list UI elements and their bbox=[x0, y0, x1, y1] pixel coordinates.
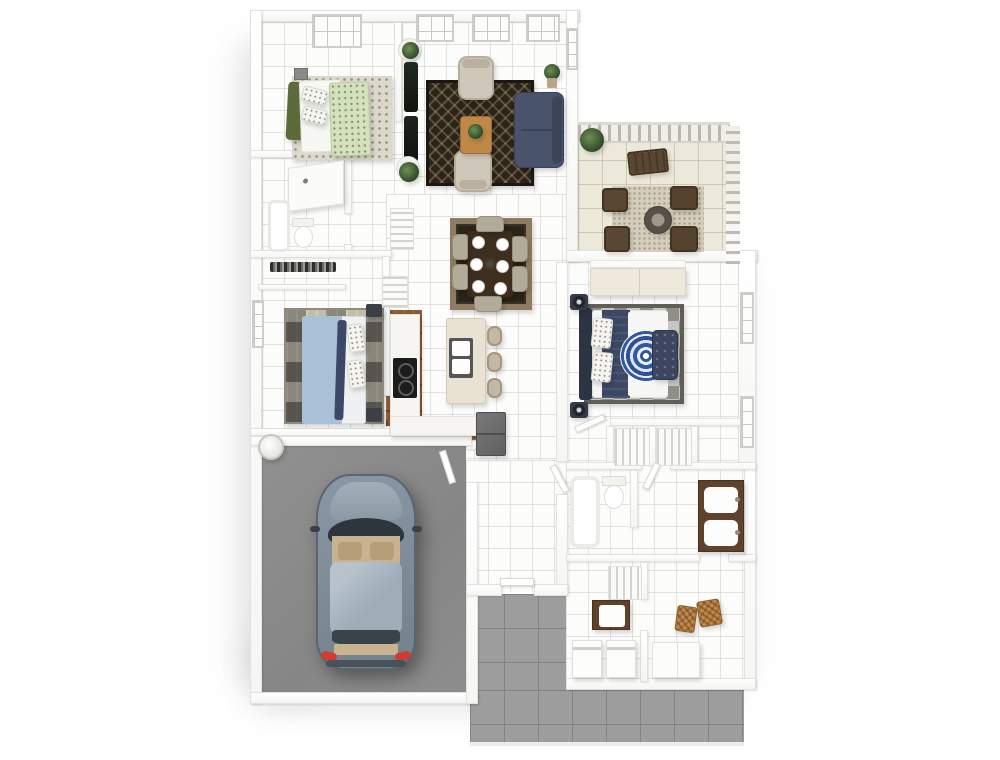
patio-plant-icon bbox=[580, 128, 604, 152]
vanity-faucet-1 bbox=[735, 497, 740, 502]
master-window-2 bbox=[740, 396, 754, 448]
sink-basin-2 bbox=[452, 359, 470, 374]
cooktop bbox=[393, 358, 417, 398]
car-hood bbox=[330, 482, 402, 520]
dining-chair-top bbox=[476, 216, 504, 232]
armchair-bottom-back bbox=[459, 180, 487, 189]
bedroom-1-wall-right bbox=[394, 22, 402, 122]
vanity-sink-1 bbox=[704, 487, 738, 513]
master-wardrobe-ledge bbox=[590, 260, 686, 268]
driveway-floor bbox=[470, 690, 744, 746]
front-wall-left-of-door bbox=[466, 584, 502, 596]
patio-bench bbox=[627, 148, 669, 176]
car-seat-right bbox=[370, 542, 394, 560]
wicker-basket-right bbox=[696, 598, 723, 628]
linen-shelves-lower bbox=[382, 276, 408, 308]
laundry-sink-basin bbox=[599, 605, 625, 627]
living-corner-plant-pot bbox=[547, 78, 557, 88]
mudroom-cabinet bbox=[652, 642, 700, 678]
living-plant-bottom-icon bbox=[399, 162, 419, 182]
dryer-control-strip bbox=[607, 647, 635, 650]
suite-wall-right-lower bbox=[744, 465, 756, 687]
master-window-1 bbox=[740, 292, 754, 344]
armchair-top bbox=[458, 56, 494, 100]
dryer bbox=[606, 640, 636, 678]
foyer-floor bbox=[466, 460, 566, 592]
navy-sofa bbox=[514, 92, 564, 168]
living-right-wall-window bbox=[566, 28, 578, 70]
burner-2 bbox=[398, 380, 414, 396]
living-plant-top-icon bbox=[402, 42, 419, 59]
master-closet-shelf-right bbox=[656, 428, 692, 466]
bath1-faucet-icon bbox=[303, 178, 308, 184]
car bbox=[316, 474, 416, 670]
exterior-wall-left bbox=[250, 10, 262, 704]
patio-chair-2 bbox=[604, 226, 630, 252]
linen-shelves-upper bbox=[390, 208, 414, 250]
front-wall-right-of-door bbox=[534, 584, 568, 596]
vanity-faucet-2 bbox=[735, 530, 740, 535]
chandelier-icon bbox=[486, 260, 494, 268]
island-sink bbox=[449, 338, 473, 378]
master-suite-wall-left-upper bbox=[556, 262, 568, 462]
washer-control-strip bbox=[573, 647, 601, 650]
place-setting-1 bbox=[472, 236, 485, 249]
sink-basin-1 bbox=[452, 341, 470, 356]
master-toilet-bowl bbox=[604, 485, 624, 509]
car-mirror-right bbox=[412, 526, 422, 532]
bedroom-2-nightstand-top bbox=[366, 304, 382, 317]
dining-chair-left-1 bbox=[452, 234, 468, 260]
front-door-leaf bbox=[500, 578, 534, 586]
wicker-basket-left bbox=[674, 605, 697, 634]
master-pillow-2 bbox=[590, 351, 613, 383]
master-bench bbox=[652, 330, 678, 380]
place-setting-6 bbox=[494, 282, 507, 295]
bedroom-2-closet-wall bbox=[258, 284, 346, 290]
refrigerator bbox=[476, 412, 506, 456]
armchair-bottom bbox=[454, 150, 492, 192]
master-pillow-1 bbox=[590, 317, 613, 349]
patio-chair-3 bbox=[670, 186, 698, 210]
dining-chair-right-1 bbox=[512, 236, 528, 262]
bedroom-2-nightstand-bottom bbox=[366, 408, 382, 421]
dining-chair-right-2 bbox=[512, 266, 528, 292]
wardrobe-door-line bbox=[639, 269, 640, 295]
bedroom-1-headboard-cabinet bbox=[294, 68, 308, 80]
master-bath-wall-bottom-left bbox=[566, 554, 700, 562]
master-tub bbox=[570, 476, 600, 548]
living-window-3 bbox=[526, 14, 560, 42]
toilet-nook-wall bbox=[630, 470, 638, 528]
place-setting-2 bbox=[496, 238, 509, 251]
front-porch-floor bbox=[470, 594, 566, 698]
laundry-sink-cabinet bbox=[592, 600, 630, 630]
bar-stool-1 bbox=[487, 326, 502, 346]
place-setting-4 bbox=[496, 260, 509, 273]
place-setting-5 bbox=[472, 280, 485, 293]
laundry-wall-right-lower bbox=[640, 630, 648, 682]
master-wardrobe bbox=[590, 268, 686, 296]
double-vanity bbox=[698, 480, 744, 552]
bath1-vanity bbox=[288, 160, 344, 212]
garage-wall-bottom bbox=[250, 692, 478, 704]
master-bath-wall-bottom-right bbox=[728, 554, 756, 562]
sofa-cushion-line bbox=[521, 129, 557, 131]
lower-closet-shelf bbox=[608, 566, 642, 600]
coffee-table-plant-icon bbox=[468, 124, 483, 139]
master-closet-divider-1 bbox=[606, 426, 614, 466]
dining-chair-bottom bbox=[474, 296, 502, 312]
bath1-toilet-bowl bbox=[294, 226, 313, 248]
kitchen-bottom-counter bbox=[390, 416, 480, 436]
master-headboard bbox=[579, 308, 592, 400]
floorplan-canvas bbox=[0, 0, 1000, 760]
washer bbox=[572, 640, 602, 678]
car-mirror-left bbox=[310, 526, 320, 532]
patio-chair-4 bbox=[670, 226, 698, 252]
patio-chair-1 bbox=[602, 188, 628, 212]
master-lamp-top bbox=[573, 296, 585, 308]
bath1-tub bbox=[268, 200, 290, 252]
bar-stool-3 bbox=[487, 378, 502, 398]
armchair-top-back bbox=[462, 59, 490, 68]
bedroom-1-window bbox=[312, 14, 362, 48]
water-heater bbox=[258, 434, 284, 460]
car-rear-bumper bbox=[326, 660, 406, 667]
car-rear-deck bbox=[334, 644, 398, 655]
car-roof-glass bbox=[330, 562, 402, 634]
master-suite-wall-left-lower bbox=[556, 494, 568, 592]
fridge-door-line bbox=[477, 433, 505, 435]
fire-pit bbox=[644, 206, 672, 234]
burner-1 bbox=[398, 363, 414, 379]
bathroom-wall-right-upper bbox=[344, 158, 352, 214]
master-closet-shelf-left bbox=[614, 428, 650, 466]
place-setting-3 bbox=[470, 258, 483, 271]
bar-stool-2 bbox=[487, 352, 502, 372]
bedroom-1-green-duvet bbox=[329, 81, 372, 156]
bedroom-2-closet-rod bbox=[270, 262, 336, 272]
suite-wall-bottom bbox=[566, 678, 756, 690]
mudroom-cabinet-line bbox=[677, 643, 678, 677]
living-window-1 bbox=[416, 14, 454, 42]
bedroom-2-window bbox=[252, 300, 264, 348]
living-window-2 bbox=[472, 14, 510, 42]
patio-railing-right bbox=[726, 126, 740, 264]
master-lamp-bottom bbox=[573, 404, 585, 416]
car-seat-left bbox=[338, 542, 362, 560]
master-bedroom-wall-bottom bbox=[610, 418, 742, 426]
living-curtain-panel-1 bbox=[404, 62, 418, 112]
dining-chair-left-2 bbox=[452, 264, 468, 290]
vanity-sink-2 bbox=[704, 520, 738, 546]
